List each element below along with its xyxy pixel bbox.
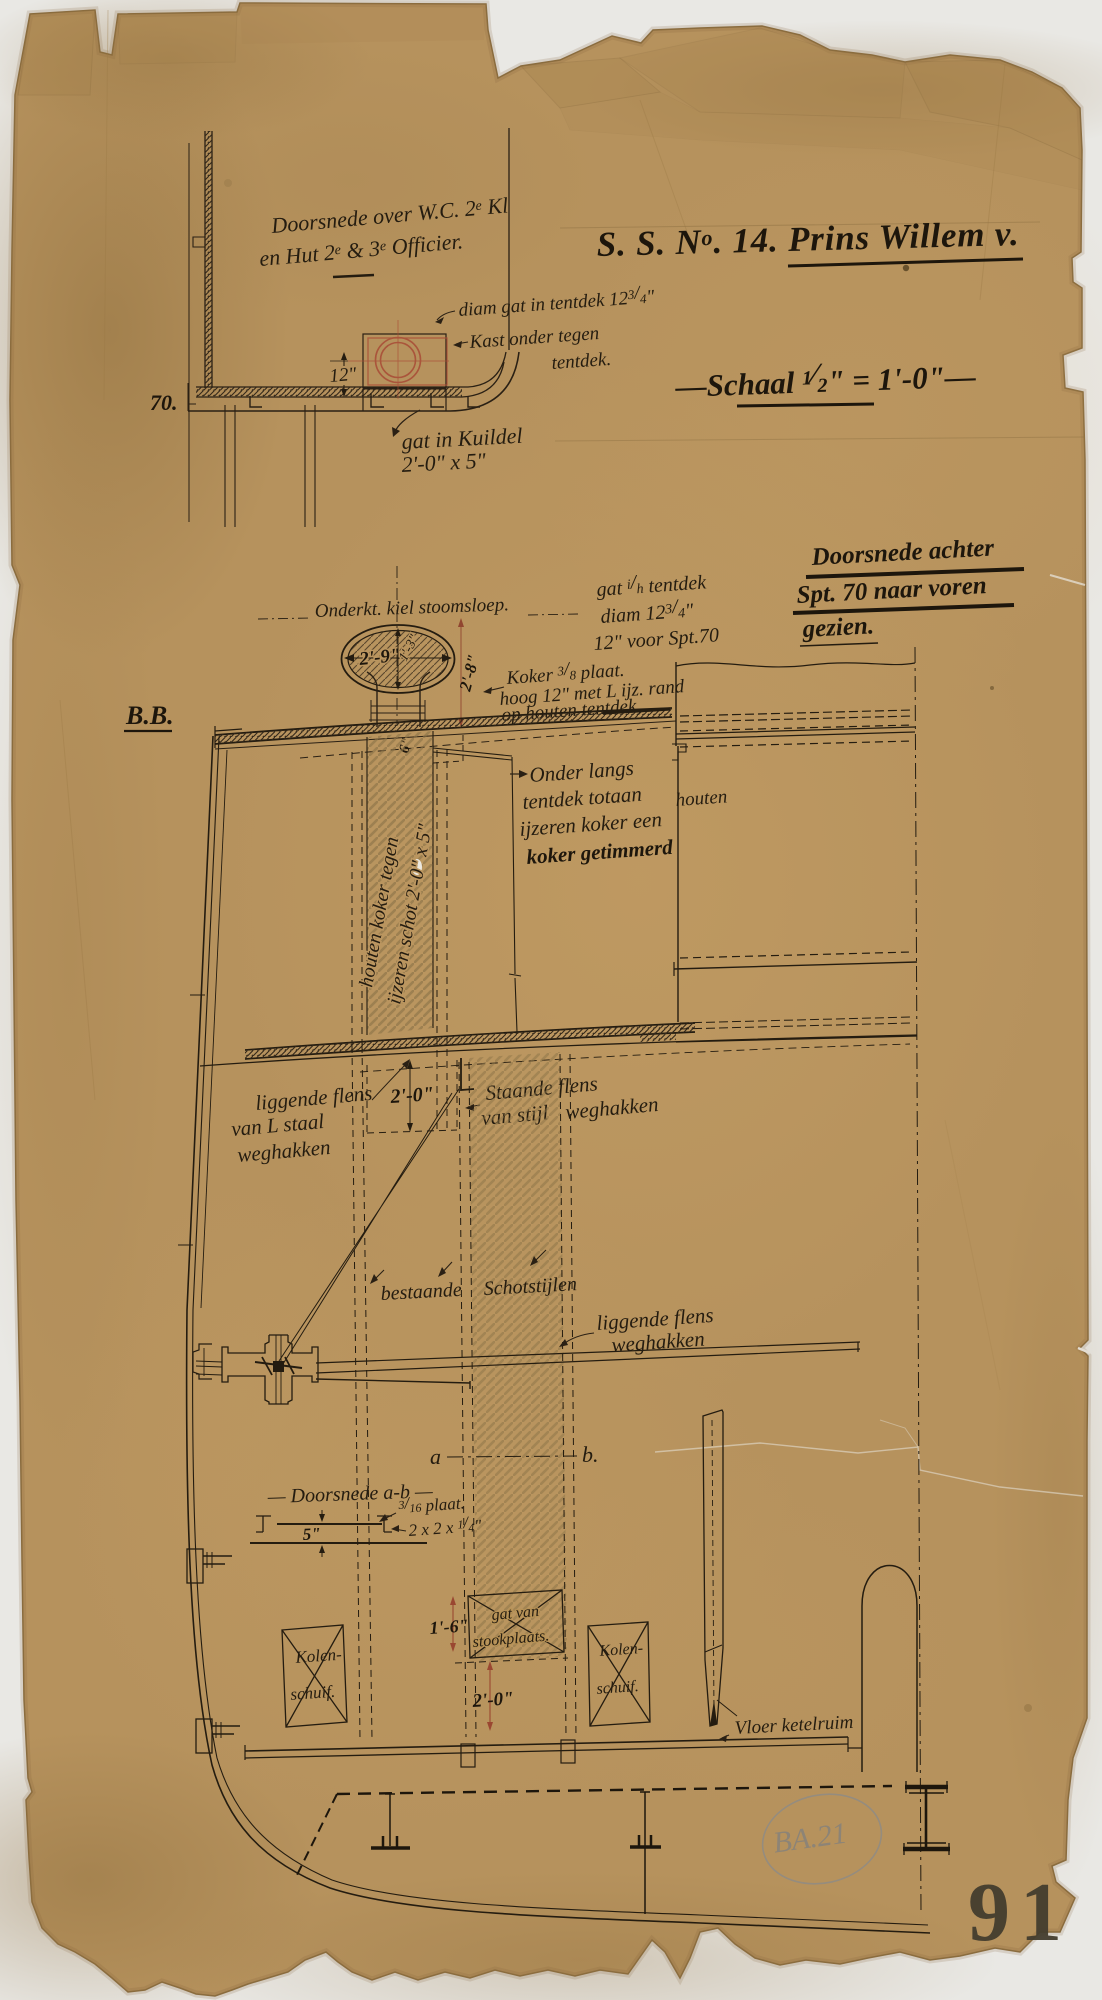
svg-text:schuif.: schuif. xyxy=(290,1682,336,1704)
svg-text:bestaande: bestaande xyxy=(380,1279,462,1305)
svg-text:2'-9": 2'-9" xyxy=(357,645,401,670)
svg-text:1'-6": 1'-6" xyxy=(429,1615,469,1638)
svg-text:Kolen-: Kolen- xyxy=(598,1640,644,1660)
svg-text:schuif.: schuif. xyxy=(596,1678,639,1698)
svg-text:gezien.: gezien. xyxy=(801,612,875,643)
svg-text:2'-0" x 5": 2'-0" x 5" xyxy=(401,448,487,477)
svg-text:Kolen-: Kolen- xyxy=(294,1645,343,1667)
svg-text:B.B.: B.B. xyxy=(125,701,174,730)
svg-text:houten: houten xyxy=(675,786,728,811)
svg-text:a: a xyxy=(430,1444,441,1469)
svg-text:70.: 70. xyxy=(150,390,178,415)
svg-text:91: 91 xyxy=(968,1866,1072,1959)
svg-text:b.: b. xyxy=(582,1442,599,1467)
svg-text:2'-0": 2'-0" xyxy=(471,1688,515,1712)
svg-text:12": 12" xyxy=(329,364,359,387)
svg-text:5": 5" xyxy=(302,1524,321,1544)
svg-text:tentdek.: tentdek. xyxy=(551,349,612,374)
svg-text:2'-0": 2'-0" xyxy=(389,1083,435,1108)
